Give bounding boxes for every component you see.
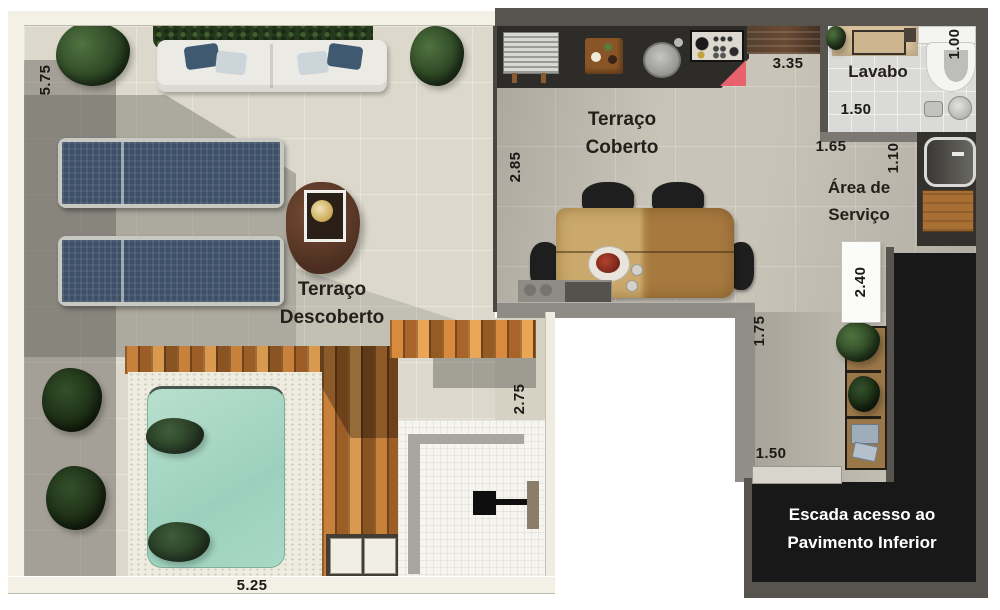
sun-lounger-2 <box>58 236 284 306</box>
counter-knob-1 <box>524 284 536 296</box>
dining-table-seam <box>556 251 734 253</box>
lavabo-washbasin <box>948 96 972 120</box>
outer-wall-top-left <box>8 10 495 26</box>
grill <box>503 32 559 74</box>
outer-wall-right <box>976 8 988 598</box>
glass-2 <box>626 280 638 292</box>
outer-wall-left <box>8 10 24 594</box>
shower-room-east-wall <box>545 312 555 588</box>
dim-lavabo-width: 1.50 <box>826 102 886 118</box>
room-label-escada-line1: Escada acesso ao <box>752 505 972 525</box>
outer-wall-top-right <box>495 8 988 26</box>
laundry-faucet <box>952 152 964 156</box>
sofa-pillow-navy-2 <box>327 43 364 71</box>
outer-wall-bottom-right <box>745 582 988 598</box>
grill-leg-2 <box>541 73 546 83</box>
dim-coberto-width: 3.35 <box>758 56 818 72</box>
dim-left-wall-height: 5.75 <box>38 58 54 102</box>
shower-border-top <box>408 434 524 444</box>
stair-landing-west-wall <box>744 478 752 598</box>
room-label-terraco-descoberto-line1: Terraço <box>252 280 412 300</box>
terrace-divider-wall <box>493 26 497 312</box>
vanity-sink <box>852 30 906 55</box>
shower-head <box>473 491 496 515</box>
sofa-pillow-light-1 <box>215 50 247 75</box>
food-greens <box>604 43 612 51</box>
dim-stair-landing-width: 1.50 <box>741 446 801 462</box>
dim-servico-width: 1.65 <box>801 139 861 155</box>
sun-lounger-1 <box>58 138 284 208</box>
room-label-terraco-descoberto-line2: Descoberto <box>252 308 412 328</box>
counter-knob-2 <box>540 284 552 296</box>
room-label-terraco-coberto-line2: Coberto <box>542 138 702 158</box>
room-label-area-servico-line1: Área de <box>779 178 939 198</box>
covered-terrace-south-wall <box>497 302 755 318</box>
dim-corridor-width: 1.75 <box>752 309 768 353</box>
dim-lavabo-depth: 1.00 <box>947 22 963 66</box>
south-counter-sink <box>565 282 611 303</box>
shower-border-left <box>408 434 420 574</box>
room-label-area-servico-line2: Serviço <box>779 205 939 225</box>
lavabo-soap-dish <box>924 101 943 117</box>
sofa-pillow-light-2 <box>297 50 329 75</box>
room-label-terraco-coberto-line1: Terraço <box>542 110 702 130</box>
shower-wall-post <box>527 481 539 529</box>
food-plate <box>591 52 601 62</box>
shelf-divider-1 <box>847 370 881 373</box>
cooktop <box>690 30 744 62</box>
sun-lounger-cushion <box>62 142 280 204</box>
grill-leg-1 <box>512 73 517 83</box>
plan-notch <box>555 318 745 610</box>
floor-plan: Terraço Coberto Terraço Descoberto Lavab… <box>0 0 1000 610</box>
room-label-escada-line2: Pavimento Inferior <box>752 533 972 553</box>
tray-bowl <box>311 200 333 222</box>
sun-lounger-cushion <box>62 240 280 302</box>
dim-service-corridor-length: 2.40 <box>853 260 869 304</box>
stair-guard-wall <box>752 466 842 484</box>
dim-pool-side-width: 5.25 <box>222 578 282 594</box>
wood-counter-extension <box>747 26 825 54</box>
kitchen-sink <box>643 42 681 78</box>
glass-1 <box>631 264 643 276</box>
sofa-seat-divider <box>270 44 273 88</box>
dim-shower-depth: 2.75 <box>512 377 528 421</box>
room-label-lavabo: Lavabo <box>798 62 958 82</box>
stairwell-west-wall <box>886 247 894 482</box>
deck-stool-2 <box>364 538 396 574</box>
dim-coberto-depth: 2.85 <box>508 145 524 189</box>
shelf-divider-2 <box>847 416 881 419</box>
deck-stool-1 <box>330 538 362 574</box>
dim-servico-depth: 1.10 <box>886 136 902 180</box>
sink-faucet <box>674 38 683 47</box>
plate-food <box>596 253 620 273</box>
vanity-accessory <box>904 28 916 42</box>
food-bowl <box>608 55 617 64</box>
